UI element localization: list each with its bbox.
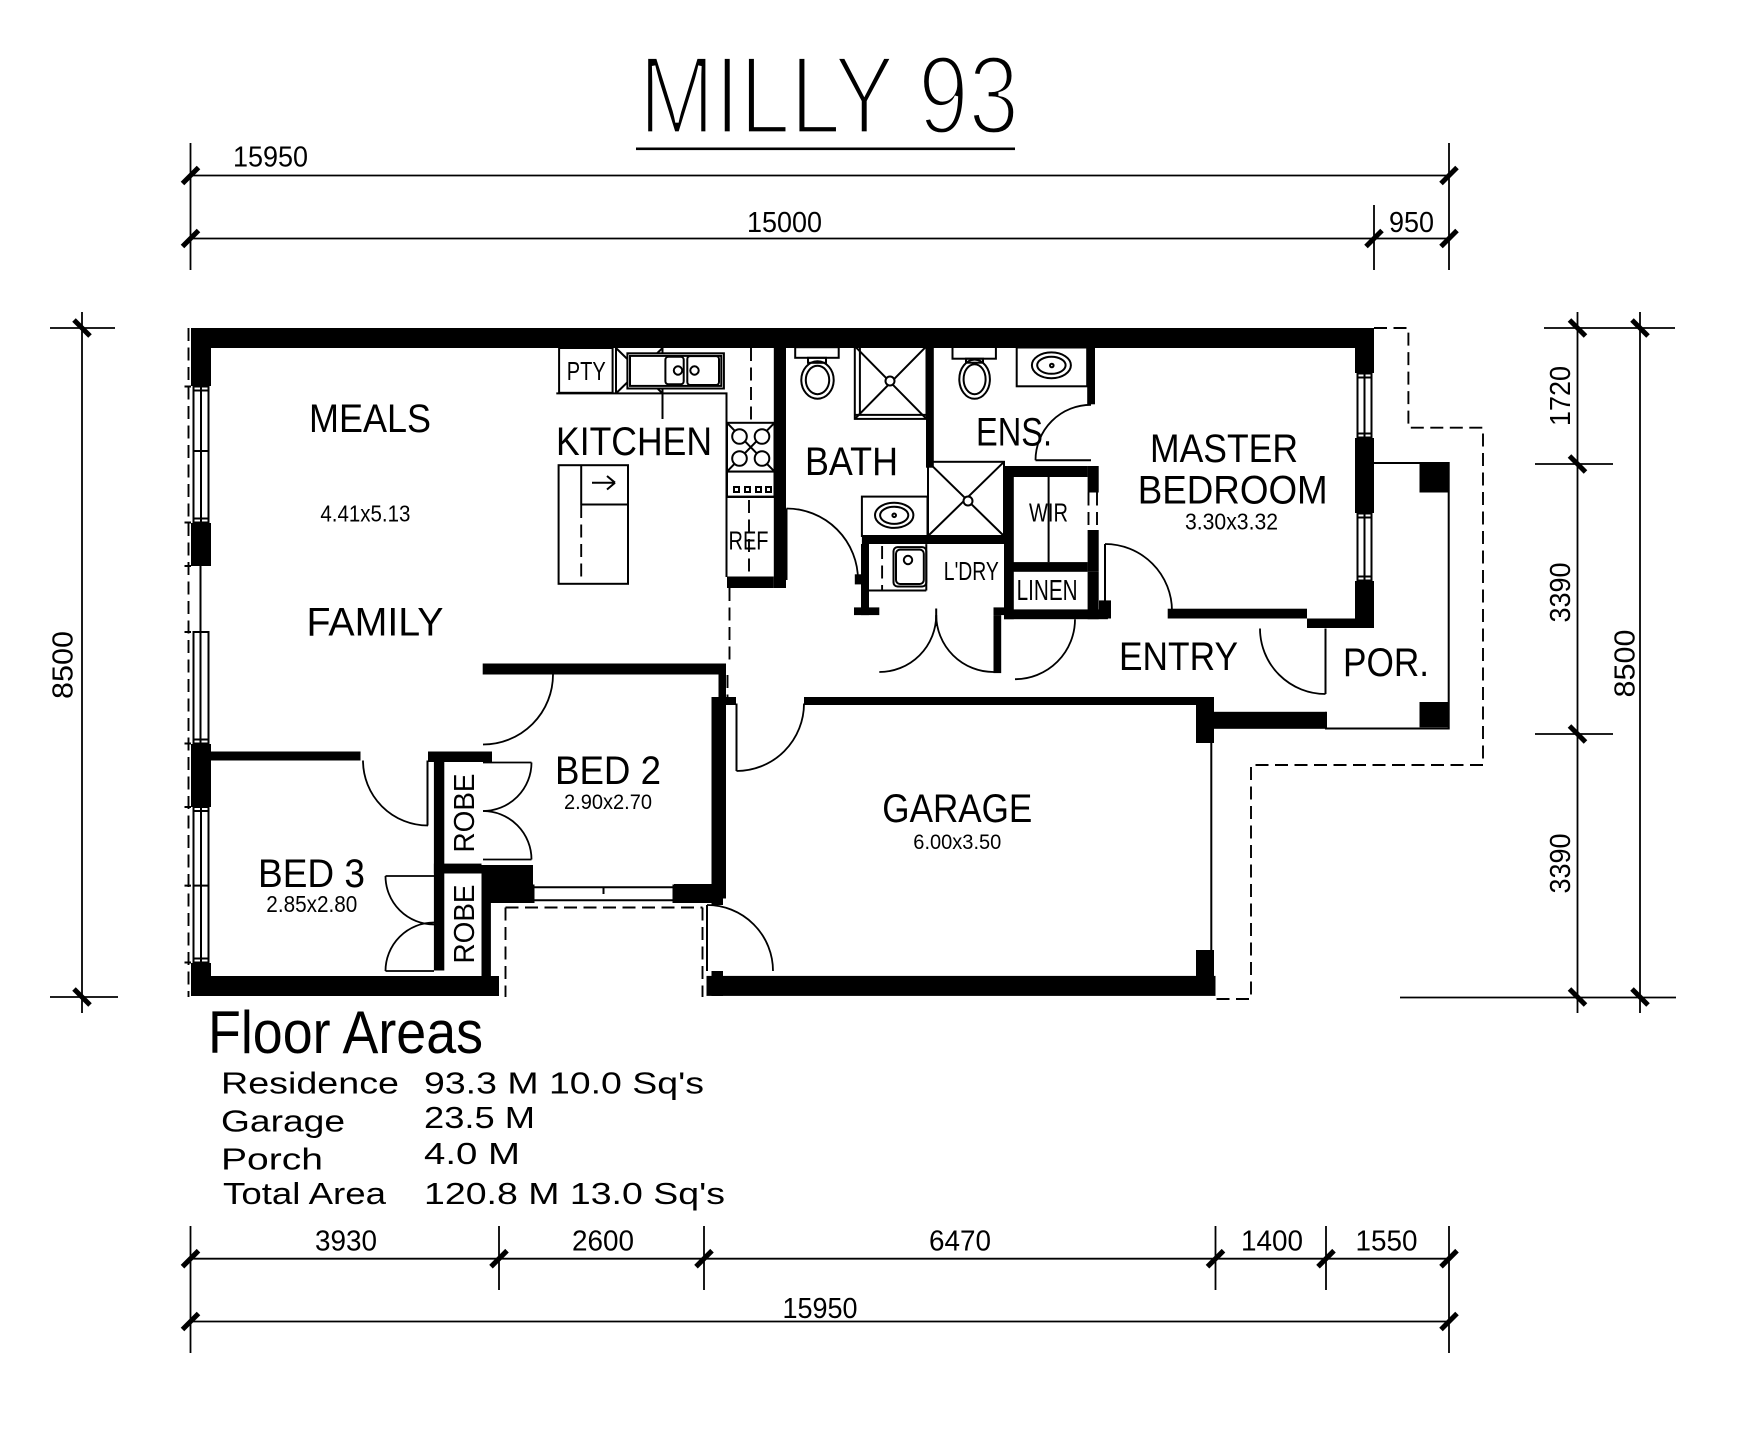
- svg-text:BED 2: BED 2: [555, 749, 661, 793]
- svg-text:1400: 1400: [1241, 1226, 1303, 1258]
- svg-text:2.90x2.70: 2.90x2.70: [564, 791, 652, 814]
- svg-text:FAMILY: FAMILY: [307, 601, 444, 645]
- svg-text:950: 950: [1389, 207, 1434, 239]
- svg-text:POR.: POR.: [1343, 641, 1429, 685]
- svg-text:Residence: Residence: [221, 1066, 399, 1101]
- svg-text:23.5 M: 23.5 M: [424, 1100, 535, 1135]
- svg-text:ENS.: ENS.: [976, 411, 1052, 455]
- svg-text:KITCHEN: KITCHEN: [556, 420, 712, 464]
- svg-text:MEALS: MEALS: [309, 397, 431, 441]
- svg-text:ENTRY: ENTRY: [1119, 635, 1238, 679]
- svg-text:GARAGE: GARAGE: [882, 787, 1032, 831]
- svg-text:BED 3: BED 3: [258, 852, 365, 896]
- svg-text:MASTER: MASTER: [1150, 427, 1298, 471]
- svg-text:3390: 3390: [1545, 563, 1577, 623]
- svg-text:1550: 1550: [1356, 1226, 1418, 1258]
- svg-text:2600: 2600: [572, 1226, 634, 1258]
- svg-text:Garage: Garage: [221, 1104, 345, 1139]
- svg-text:PTY: PTY: [567, 356, 606, 386]
- svg-text:Floor Areas: Floor Areas: [208, 999, 483, 1066]
- svg-text:LINEN: LINEN: [1017, 575, 1078, 607]
- svg-text:BATH: BATH: [805, 440, 898, 484]
- svg-text:Porch: Porch: [221, 1142, 323, 1177]
- svg-text:REF: REF: [729, 526, 769, 556]
- svg-text:6.00x3.50: 6.00x3.50: [913, 831, 1001, 854]
- svg-text:3930: 3930: [315, 1226, 377, 1258]
- svg-text:L'DRY: L'DRY: [944, 556, 999, 586]
- svg-text:8500: 8500: [48, 631, 80, 699]
- svg-text:15950: 15950: [783, 1293, 858, 1325]
- svg-text:4.0 M: 4.0 M: [424, 1136, 520, 1171]
- svg-text:WIR: WIR: [1029, 498, 1068, 528]
- svg-text:4.41x5.13: 4.41x5.13: [320, 501, 410, 527]
- svg-text:15950: 15950: [233, 142, 308, 174]
- svg-text:BEDROOM: BEDROOM: [1138, 469, 1328, 513]
- svg-text:120.8 M 13.0 Sq's: 120.8 M 13.0 Sq's: [424, 1176, 725, 1211]
- svg-text:3390: 3390: [1545, 834, 1577, 894]
- svg-text:ROBE: ROBE: [449, 885, 481, 964]
- svg-text:Total Area: Total Area: [223, 1176, 387, 1211]
- svg-text:ROBE: ROBE: [449, 774, 481, 853]
- svg-text:93.3 M 10.0 Sq's: 93.3 M 10.0 Sq's: [424, 1066, 704, 1101]
- svg-text:2.85x2.80: 2.85x2.80: [266, 891, 357, 917]
- svg-text:8500: 8500: [1610, 630, 1642, 698]
- svg-text:1720: 1720: [1545, 366, 1577, 426]
- svg-text:6470: 6470: [929, 1226, 991, 1258]
- svg-text:3.30x3.32: 3.30x3.32: [1185, 509, 1278, 535]
- svg-text:15000: 15000: [747, 207, 822, 239]
- svg-text:MILLY 93: MILLY 93: [639, 34, 1019, 158]
